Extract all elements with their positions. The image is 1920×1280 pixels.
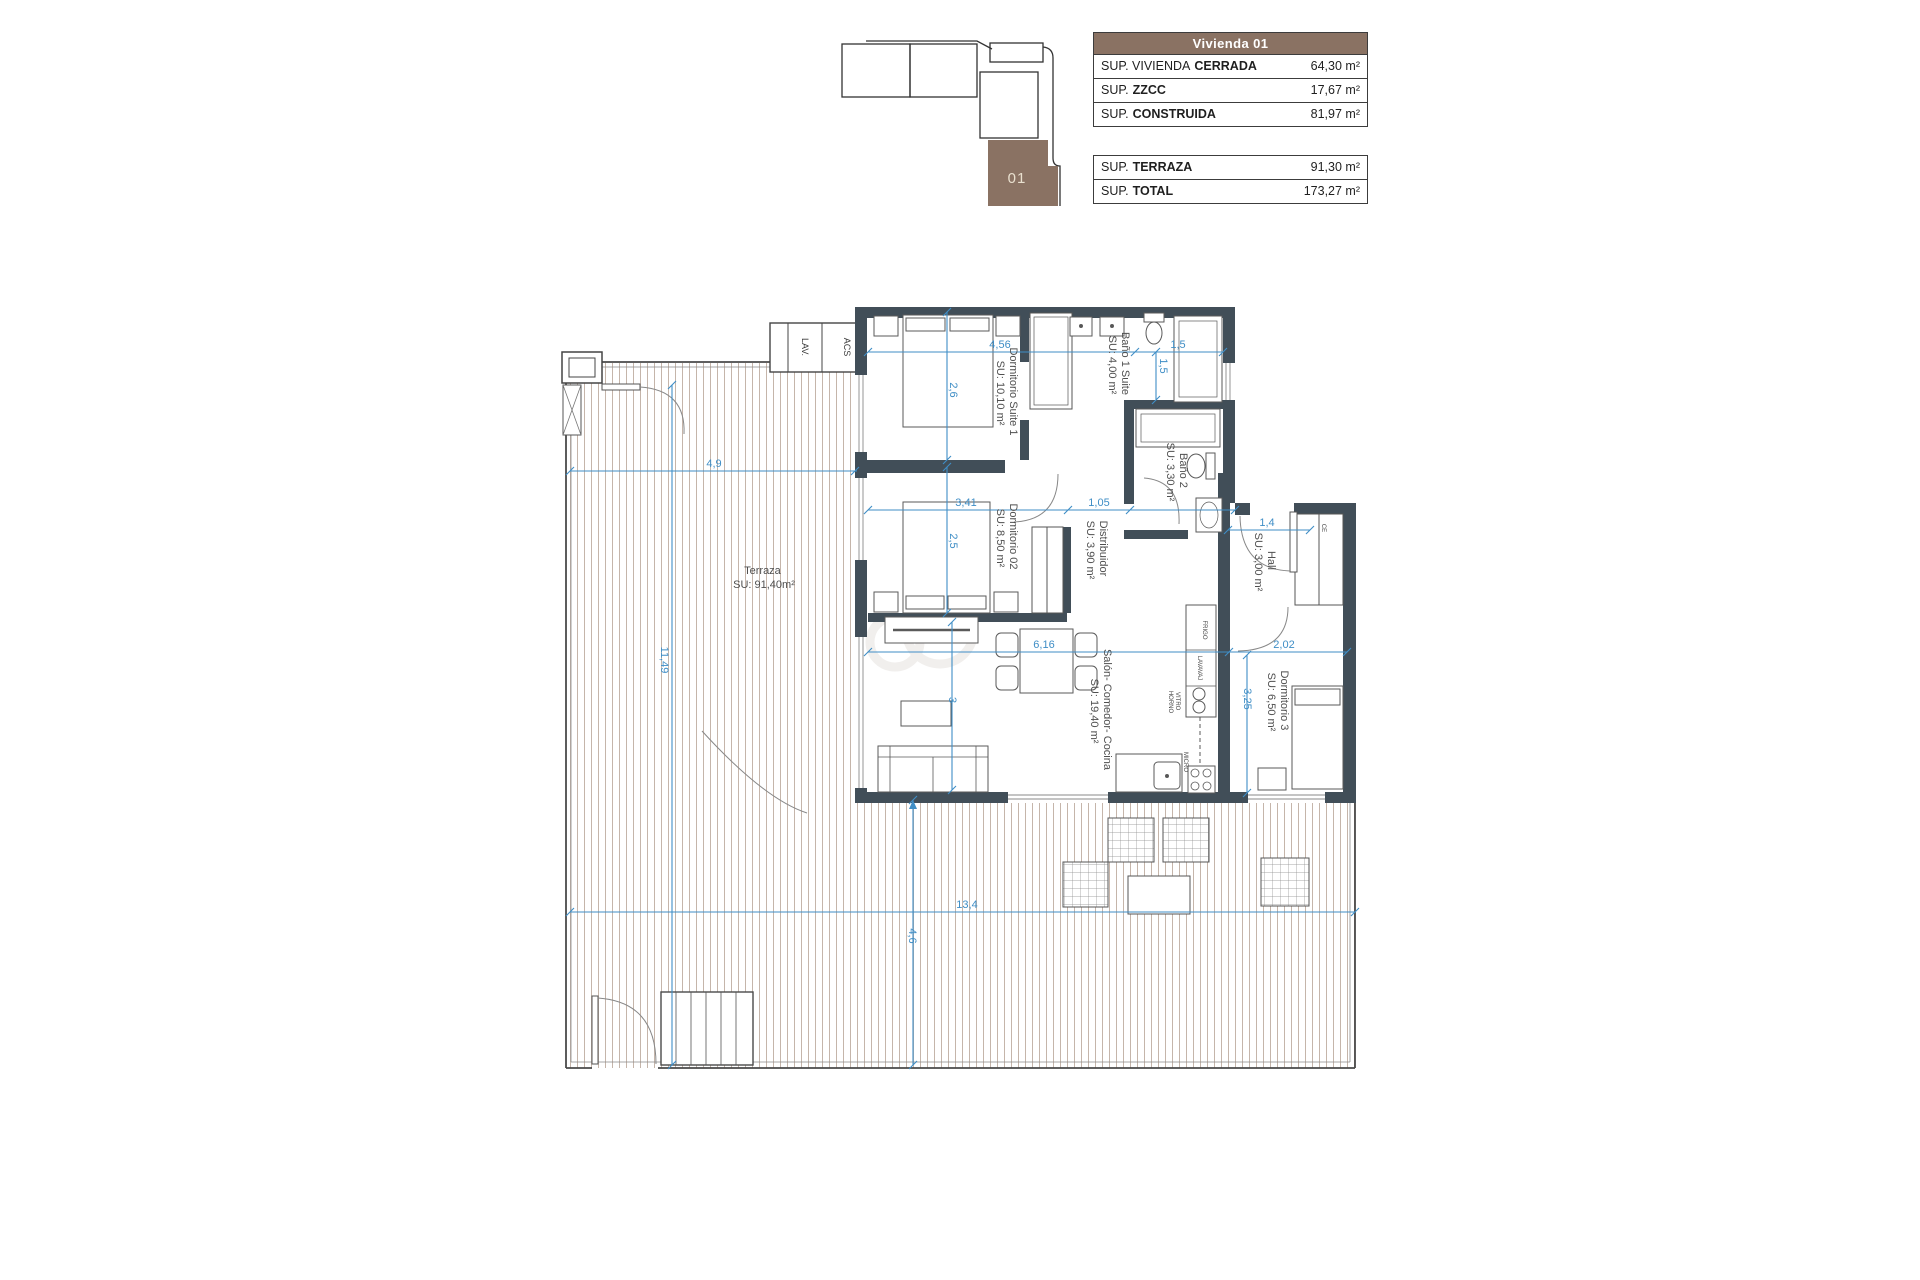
chair: [996, 633, 1018, 657]
room-name: Dormitorio 3: [1278, 671, 1290, 731]
dim-bath1-width: 1,5: [1170, 339, 1185, 351]
terrace-pillar: [562, 352, 602, 383]
nightstand: [874, 316, 898, 336]
room-name: Dormitorio 02: [1007, 503, 1019, 569]
kitchen-sink: [1193, 688, 1205, 700]
dim-bath1-height: 1,5: [1157, 358, 1169, 373]
dim-terrace-top: 4,9: [706, 458, 721, 470]
horno-label: HORNO: [1167, 691, 1173, 714]
shaft-box: [563, 385, 581, 435]
dim-suite-height: 2,6: [947, 382, 959, 397]
utility-closet: LAV. ACS: [770, 323, 857, 372]
outdoor-chair: [1261, 858, 1309, 906]
dim-hall-width: 2,02: [1273, 639, 1294, 651]
room-name: Dormitorio Suite 1: [1007, 347, 1019, 435]
room-area: SU: 8,50 m²: [994, 509, 1006, 568]
dim-distribuidor-width: 1,05: [1088, 497, 1109, 509]
room-label-hall: Hall SU: 3,00 m²: [1252, 533, 1277, 592]
dim-salon-width: 6,16: [1033, 639, 1054, 651]
key-plan-outline: [866, 41, 992, 49]
outdoor-chair: [1108, 818, 1154, 862]
nightstand: [994, 592, 1018, 612]
dim-dorm2-height: 2,5: [947, 533, 959, 548]
room-name: Salón- Comedor- Cocina: [1101, 649, 1113, 771]
vitro-horno-label: VITRO HORNO: [1167, 691, 1180, 714]
outdoor-chair: [1063, 862, 1108, 907]
room-name: Baño 2: [1177, 453, 1189, 488]
room-area: SU: 6,50 m²: [1265, 673, 1277, 732]
dim-terrace-left-height: 11,49: [658, 647, 670, 674]
toilet: [1144, 313, 1164, 322]
nightstand: [874, 592, 898, 612]
key-plan: 01: [842, 41, 1060, 206]
toilet: [1146, 322, 1162, 344]
door-leaf: [602, 384, 640, 390]
micro-label: MICRO: [1182, 752, 1188, 772]
chair: [996, 666, 1018, 690]
kitchen-sink: [1193, 701, 1205, 713]
room-area: SU: 10,10 m²: [994, 361, 1006, 426]
dim-terrace-bottom-height: 4,6: [906, 928, 918, 943]
room-area: SU: 4,00 m²: [1106, 336, 1118, 395]
key-plan-block: [990, 43, 1043, 62]
chair: [1075, 633, 1097, 657]
dim-salon-height: 3: [946, 697, 958, 703]
floor-plan-drawing: 01: [0, 0, 1920, 1280]
toilet: [1206, 453, 1215, 479]
lavavajillas-label: LAVAVAJ: [1196, 656, 1202, 681]
room-label-distribuidor: Distribuidor SU: 3,90 m²: [1084, 521, 1109, 580]
nightstand: [1258, 768, 1286, 790]
dim-terrace-bottom-width: 13,4: [956, 899, 977, 911]
room-label-dormitorio-suite-1: Dormitorio Suite 1 SU: 10,10 m²: [994, 347, 1019, 438]
coffee-table: [901, 701, 951, 726]
room-name: Baño 1 Suite: [1119, 332, 1131, 395]
bed: [903, 315, 993, 427]
outdoor-table: [1128, 876, 1190, 914]
room-name: Hall: [1265, 551, 1277, 570]
room-area: SU: 3,90 m²: [1084, 521, 1096, 580]
room-area: SU: 3,00 m²: [1252, 533, 1264, 592]
key-plan-block: [910, 44, 977, 97]
closet-ce-label: CE: [1320, 524, 1326, 532]
room-label-bano-2: Baño 2 SU: 3,30 m²: [1164, 443, 1189, 502]
room-area: SU: 3,30 m²: [1164, 443, 1176, 502]
door-leaf: [1290, 512, 1297, 572]
dim-hall-depth: 1,4: [1259, 517, 1274, 529]
acs-label: ACS: [842, 338, 852, 357]
room-area: SU: 19,40 m²: [1088, 679, 1100, 744]
key-plan-block: [980, 72, 1038, 138]
key-plan-block: [842, 44, 910, 97]
dim-dorm3-height: 3,25: [1241, 688, 1253, 709]
lav-label: LAV.: [800, 338, 810, 356]
vitro-label: VITRO: [1174, 692, 1180, 711]
dim-dorm2-width: 3,41: [955, 497, 976, 509]
room-label-bano-1-suite: Baño 1 Suite SU: 4,00 m²: [1106, 332, 1131, 398]
door-swing-arc: [1014, 474, 1058, 522]
frigo-label: FRIGO: [1201, 621, 1207, 640]
nightstand: [996, 316, 1020, 336]
room-label-dormitorio-3: Dormitorio 3 SU: 6,50 m²: [1265, 671, 1290, 734]
room-name: Terraza: [744, 565, 782, 577]
outdoor-chair: [1163, 818, 1209, 862]
floor-plan-page: Vivienda 01 SUP. VIVIENDACERRADA 64,30 m…: [0, 0, 1920, 1280]
room-label-dormitorio-02: Dormitorio 02 SU: 8,50 m²: [994, 503, 1019, 572]
terrace-stairs: [661, 992, 753, 1065]
room-name: Distribuidor: [1097, 521, 1109, 577]
door-leaf: [592, 996, 598, 1064]
room-area: SU: 91,40m²: [733, 579, 795, 591]
key-plan-unit-label: 01: [1008, 170, 1027, 187]
